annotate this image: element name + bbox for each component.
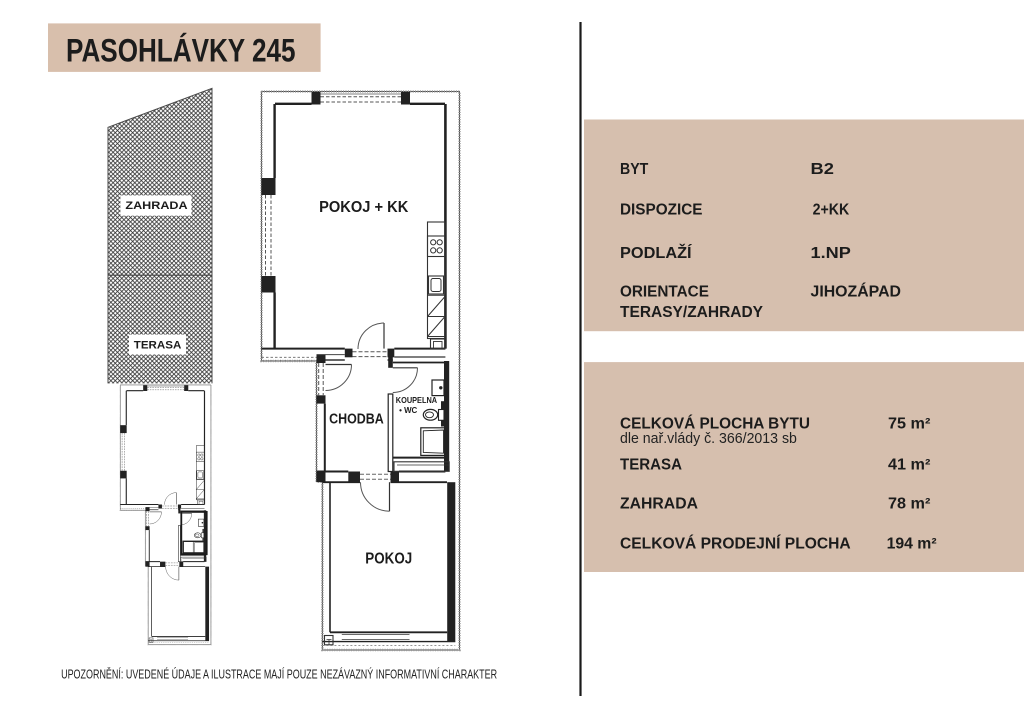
svg-text:POKOJ + KK: POKOJ + KK xyxy=(319,199,409,216)
svg-text:UPOZORNĚNÍ: UVEDENÉ ÚDAJE A IL: UPOZORNĚNÍ: UVEDENÉ ÚDAJE A ILUSTRACE MA… xyxy=(61,667,497,682)
svg-text:1.NP: 1.NP xyxy=(811,245,851,262)
svg-text:ORIENTACE: ORIENTACE xyxy=(620,284,709,301)
svg-text:DISPOZICE: DISPOZICE xyxy=(620,202,703,219)
svg-text:B2: B2 xyxy=(811,161,834,178)
svg-text:CELKOVÁ PRODEJNÍ PLOCHA: CELKOVÁ PRODEJNÍ PLOCHA xyxy=(620,536,851,553)
svg-text:JIHOZÁPAD: JIHOZÁPAD xyxy=(811,284,902,301)
svg-text:dle nař.vlády č. 366/2013 sb: dle nař.vlády č. 366/2013 sb xyxy=(620,431,797,447)
svg-text:CELKOVÁ PLOCHA BYTU: CELKOVÁ PLOCHA BYTU xyxy=(620,415,810,432)
svg-text:ZAHRADA: ZAHRADA xyxy=(620,496,698,513)
svg-text:BYT: BYT xyxy=(620,161,649,178)
svg-text:PASOHLÁVKY 245: PASOHLÁVKY 245 xyxy=(66,31,296,68)
svg-text:78 m²: 78 m² xyxy=(888,496,930,513)
svg-text:194 m²: 194 m² xyxy=(887,536,937,553)
svg-text:TERASA: TERASA xyxy=(620,457,682,474)
svg-text:• WC: • WC xyxy=(399,406,417,415)
svg-text:POKOJ: POKOJ xyxy=(365,551,412,568)
svg-text:41 m²: 41 m² xyxy=(888,457,930,474)
svg-text:2+KK: 2+KK xyxy=(813,202,850,219)
svg-text:TERASY/ZAHRADY: TERASY/ZAHRADY xyxy=(620,304,764,321)
svg-text:TERASA: TERASA xyxy=(134,340,182,352)
svg-text:75 m²: 75 m² xyxy=(888,415,930,432)
svg-text:KOUPELNA: KOUPELNA xyxy=(396,396,437,405)
svg-text:PODLAŽÍ: PODLAŽÍ xyxy=(620,244,692,262)
svg-text:ZAHRADA: ZAHRADA xyxy=(125,200,187,212)
svg-text:CHODBA: CHODBA xyxy=(329,411,384,427)
